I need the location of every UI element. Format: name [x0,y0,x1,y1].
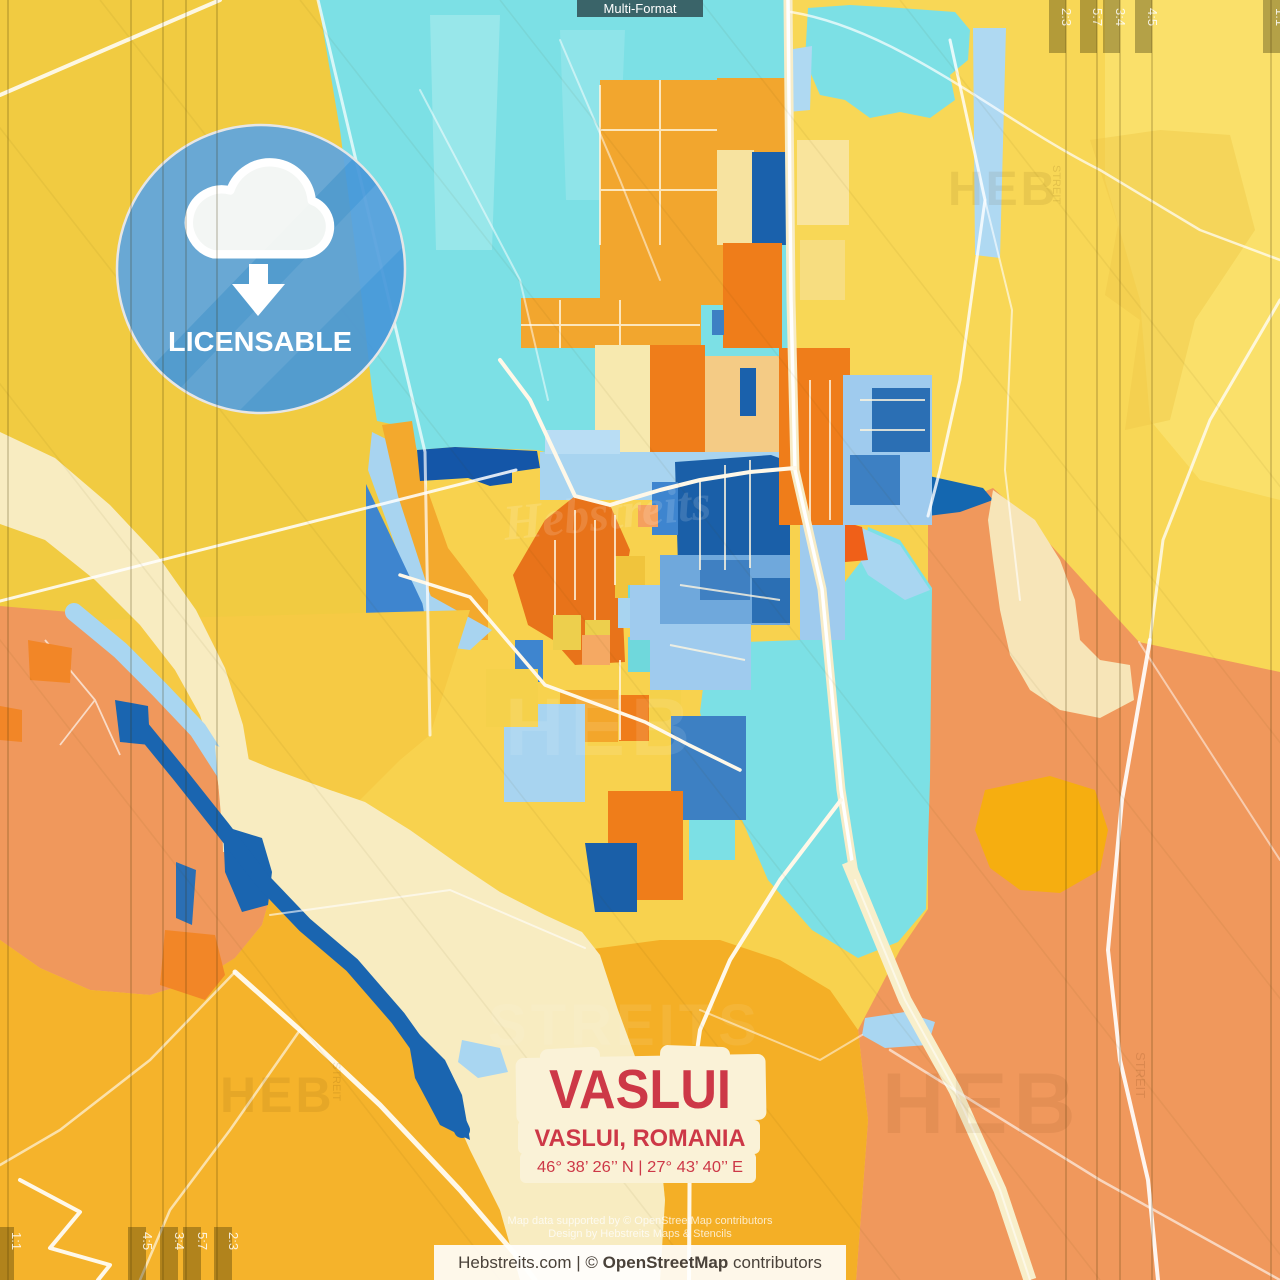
svg-text:STREIT: STREIT [1050,165,1062,204]
svg-text:Map data supported by © OpenSt: Map data supported by © OpenStreetMap co… [508,1215,773,1227]
svg-text:HEB: HEB [948,163,1058,216]
svg-text:Design by Hebstreits Maps & St: Design by Hebstreits Maps & Stencils [548,1228,732,1240]
svg-text:4:5: 4:5 [140,1232,155,1250]
svg-text:5:7: 5:7 [195,1232,210,1250]
svg-text:LICENSABLE: LICENSABLE [168,326,352,357]
svg-text:Multi-Format: Multi-Format [604,1,677,16]
svg-text:1:1: 1:1 [9,1232,24,1250]
svg-text:Hebstreits.com | © OpenStreetM: Hebstreits.com | © OpenStreetMap contrib… [458,1253,822,1272]
svg-text:STREIT: STREIT [330,1062,342,1101]
svg-text:STREIT: STREIT [1133,1052,1148,1098]
svg-text:2:3: 2:3 [226,1232,241,1250]
svg-text:VASLUI, ROMANIA: VASLUI, ROMANIA [535,1125,746,1152]
svg-text:VASLUI: VASLUI [549,1058,731,1120]
svg-text:1:1: 1:1 [1273,8,1280,26]
svg-text:HEB: HEB [220,1067,335,1123]
svg-text:3:4: 3:4 [172,1232,187,1250]
svg-text:HEB: HEB [505,682,696,773]
svg-text:HEB: HEB [882,1056,1082,1152]
svg-text:46° 38’ 26’’ N | 27° 43’: 46° 38’ 26’’ N | 27° 43’ 40’’ E [537,1159,743,1176]
